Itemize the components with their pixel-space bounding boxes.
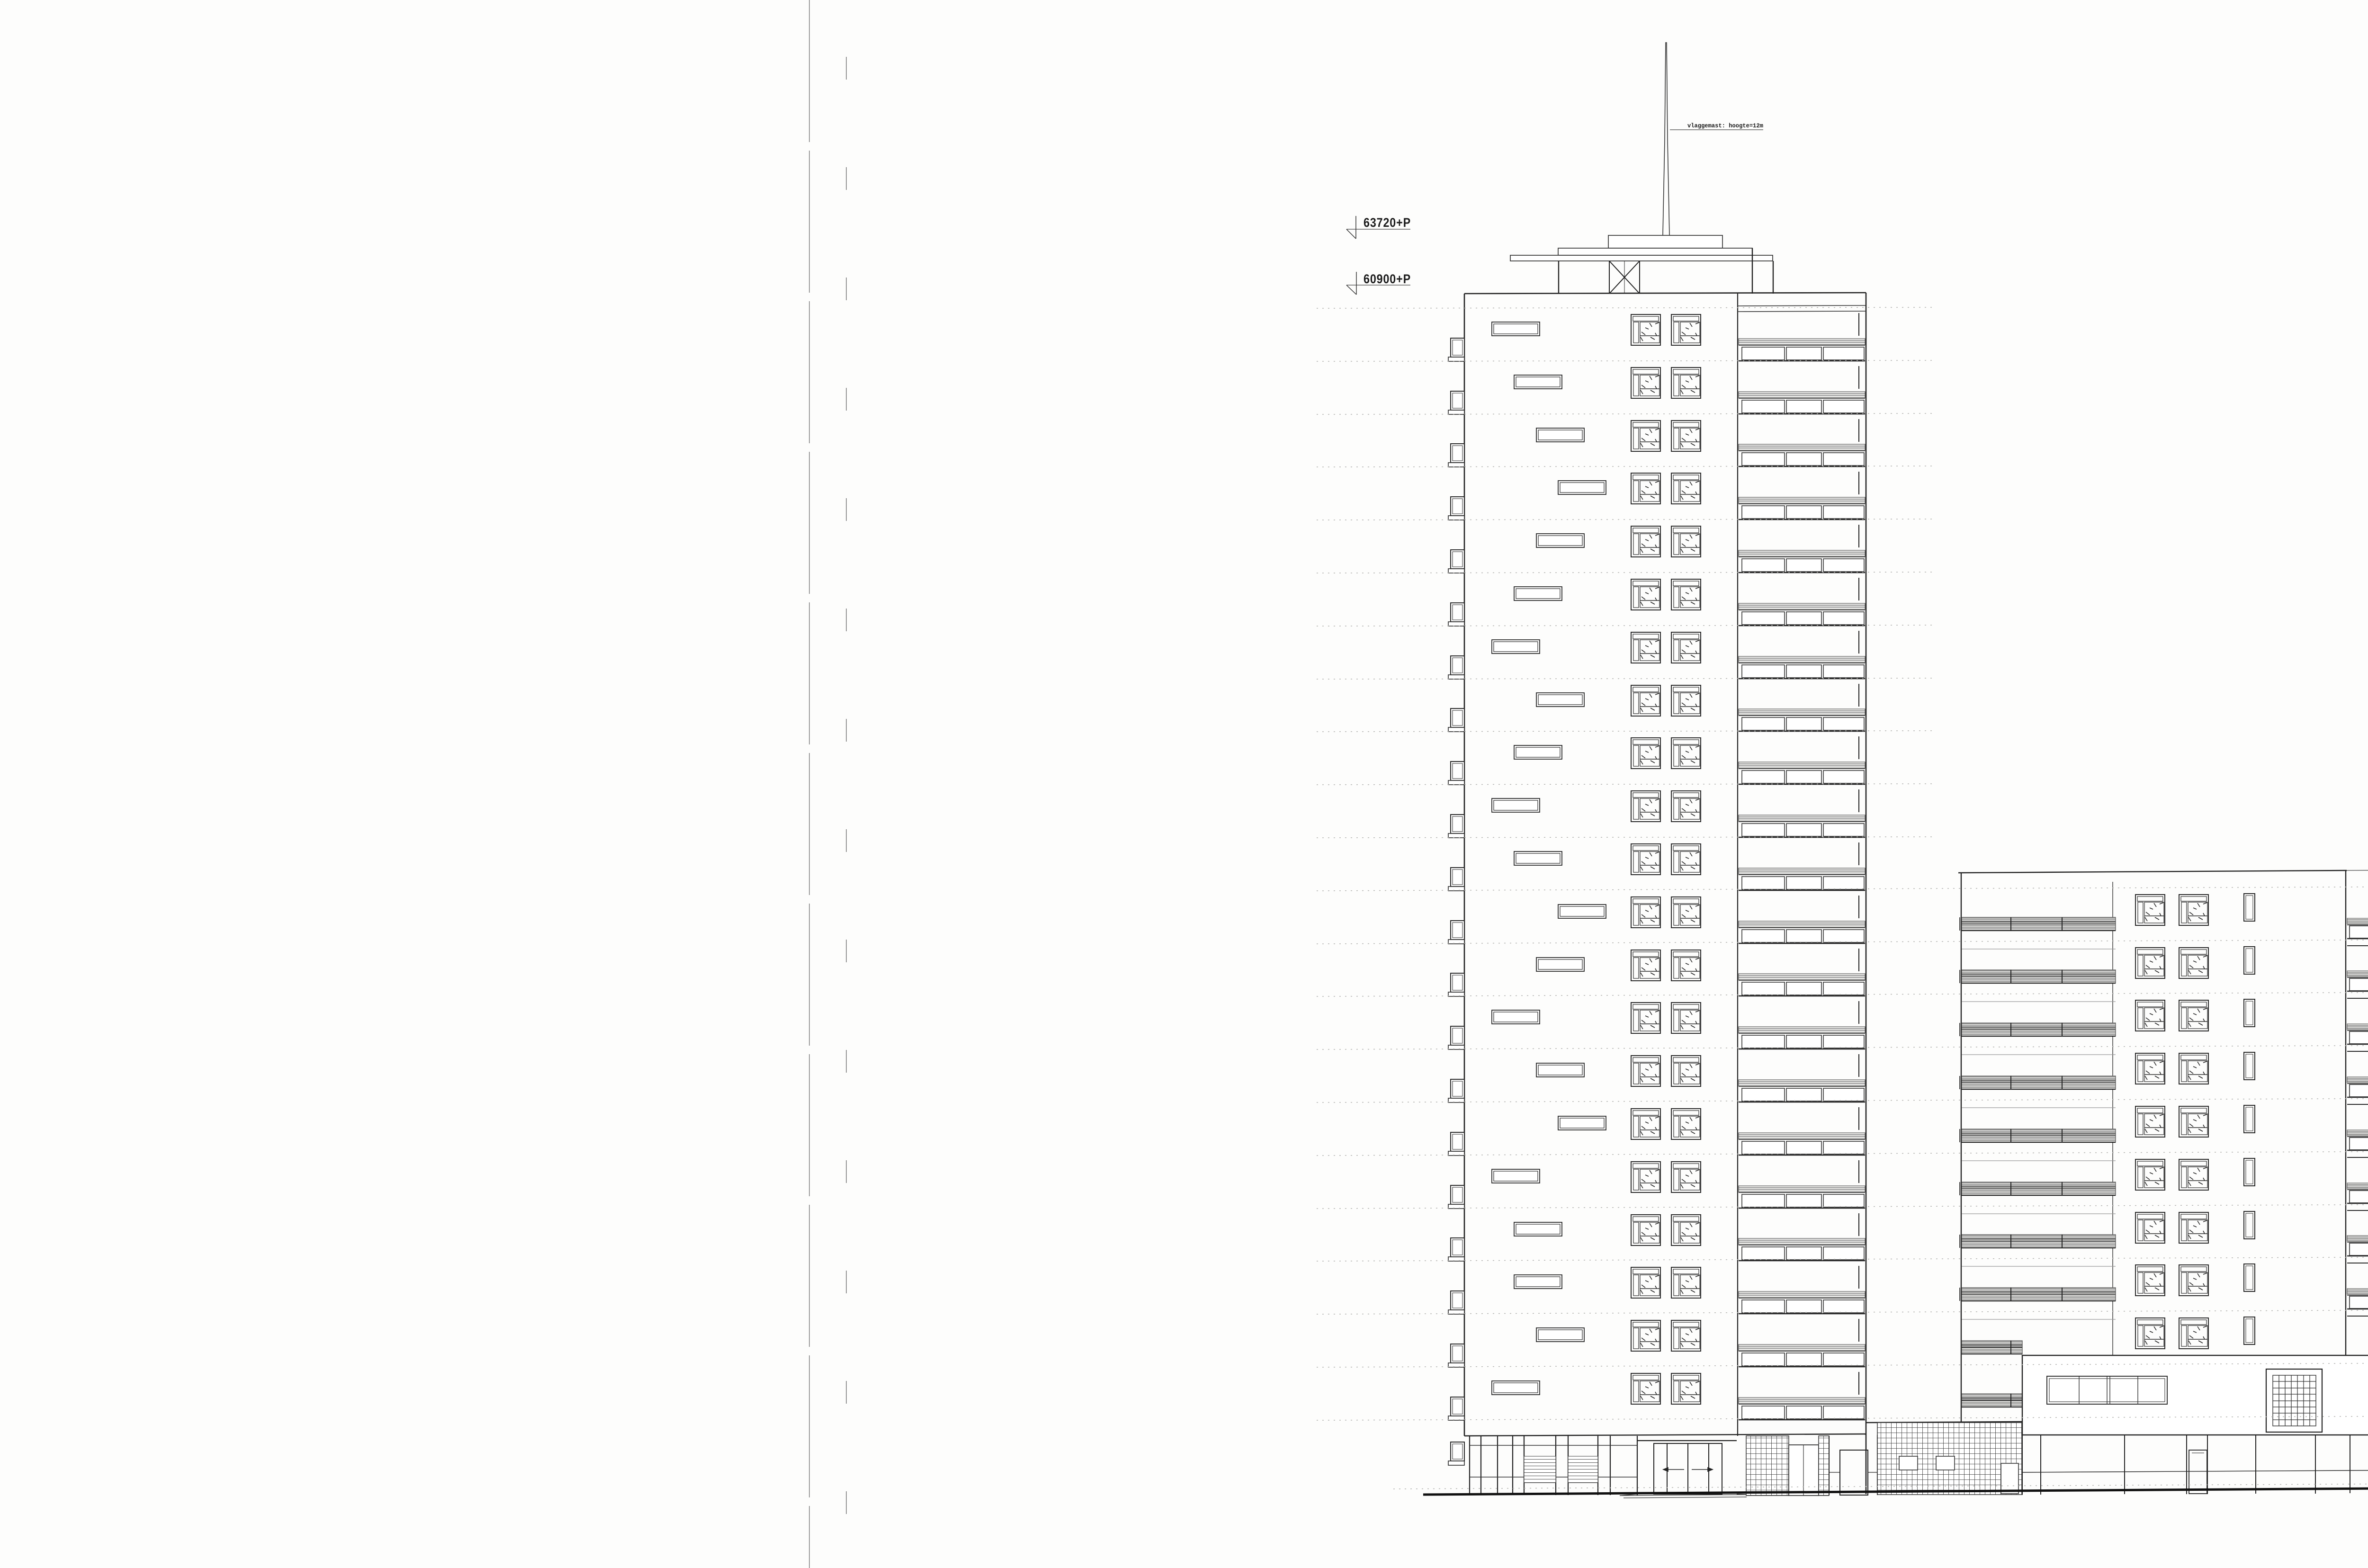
svg-text:63720+P: 63720+P bbox=[1363, 215, 1411, 230]
svg-text:60900+P: 60900+P bbox=[1363, 272, 1411, 286]
svg-text:vlaggemast: hoogte=12m: vlaggemast: hoogte=12m bbox=[1687, 122, 1763, 129]
